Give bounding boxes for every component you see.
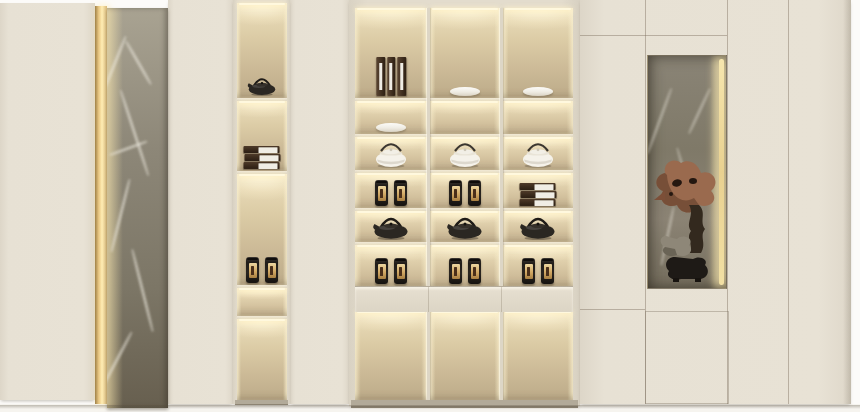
floor-cast-shadow <box>0 405 860 409</box>
bowl-body <box>523 87 553 96</box>
row-3-col-3 <box>503 137 573 170</box>
left-door-panel <box>0 3 95 400</box>
spine-label <box>400 63 403 90</box>
canister-gold-label <box>397 186 405 201</box>
marble-vein <box>119 90 149 176</box>
tall-display-column <box>233 0 290 404</box>
row-7-col-1 <box>355 311 427 400</box>
cabinet-edge-shadow <box>843 0 851 404</box>
gift-box <box>245 154 281 161</box>
bowl-white <box>376 123 406 132</box>
row-1-col-1 <box>355 8 427 98</box>
tea-canister <box>468 180 481 206</box>
canister-gold-label <box>471 264 479 279</box>
niche-light-strip <box>357 173 425 175</box>
row-1-col-2 <box>430 8 500 98</box>
row-5-col-1 <box>355 211 427 242</box>
column-divider <box>500 311 503 400</box>
canister-pair <box>449 258 481 284</box>
niche-light-strip <box>505 173 571 175</box>
box-label <box>535 184 554 190</box>
column-shelf-3 <box>237 174 287 285</box>
niche-light-strip <box>239 319 285 321</box>
bowl-body <box>376 123 406 132</box>
niche-light-strip <box>357 8 425 10</box>
gift-box-stack <box>244 145 281 169</box>
row-6-col-1 <box>355 245 427 286</box>
niche-light-strip <box>505 8 571 10</box>
canister-motif <box>399 267 402 277</box>
canister-motif <box>251 266 254 276</box>
canister-pair <box>449 180 481 206</box>
canister-gold-label <box>452 264 460 279</box>
niche-light-strip <box>432 101 498 103</box>
gift-box <box>520 199 556 206</box>
niche-light-strip <box>239 174 285 176</box>
marble-pillar <box>107 8 168 408</box>
upright-tea-box <box>376 57 385 96</box>
mid-spacer-panel <box>290 0 349 404</box>
row-3-col-1 <box>355 137 427 170</box>
box-label <box>259 163 278 169</box>
canister-motif <box>380 267 383 277</box>
canister-gold-label <box>452 186 460 201</box>
canister-gold-label <box>397 264 405 279</box>
row-2-col-2 <box>430 101 500 134</box>
row-6-col-2 <box>430 245 500 286</box>
gift-box <box>244 162 280 169</box>
gift-box-stack <box>520 182 557 206</box>
canister-motif <box>527 267 530 277</box>
drawer-divider-line <box>428 287 429 312</box>
niche-light-strip <box>239 288 285 290</box>
display-unit <box>349 0 580 406</box>
niche-light-strip <box>432 173 498 175</box>
niche-light-strip <box>239 3 285 5</box>
column-divider <box>427 8 430 286</box>
niche-light-strip <box>357 245 425 247</box>
tea-canister <box>375 180 388 206</box>
teapot-white <box>373 136 409 168</box>
marble-vein <box>131 249 154 332</box>
canister-motif <box>454 267 457 277</box>
niche-light-strip <box>505 101 571 103</box>
box-label <box>260 155 279 161</box>
accent-light-strip <box>95 6 107 404</box>
tea-canister <box>394 258 407 284</box>
row-5-col-2 <box>430 211 500 242</box>
tea-canister <box>394 180 407 206</box>
drawer-divider-line <box>501 287 502 312</box>
row-7-col-3 <box>503 311 573 400</box>
canister-motif <box>270 266 273 276</box>
teapot-dark-small <box>244 72 279 96</box>
row-2-col-3 <box>503 101 573 134</box>
teapot-dark <box>369 210 413 240</box>
row-3-col-2 <box>430 137 500 170</box>
canister-motif <box>473 267 476 277</box>
box-label <box>259 147 278 153</box>
canister-gold-label <box>268 263 276 278</box>
canister-gold-label <box>378 186 386 201</box>
upright-tea-box <box>397 57 406 96</box>
teapot-dark <box>443 210 487 240</box>
canister-gold-label <box>525 264 533 279</box>
box-label <box>535 200 554 206</box>
row-7-col-2 <box>430 311 500 400</box>
column-divider <box>500 8 503 286</box>
gift-box <box>521 191 557 198</box>
gift-box <box>244 146 280 153</box>
teapot-white <box>447 136 483 168</box>
column-shelf-5 <box>237 319 287 400</box>
row-2-col-1 <box>355 101 427 134</box>
tea-canister <box>265 257 278 283</box>
row-5-col-3 <box>503 211 573 242</box>
column-shelf-4 <box>237 288 287 316</box>
marble-vein <box>125 41 152 86</box>
spine-label <box>389 63 392 90</box>
column-divider <box>427 311 430 400</box>
tea-canister <box>468 258 481 284</box>
tea-canister <box>449 180 462 206</box>
marble-sculpture-niche <box>647 55 727 289</box>
door-seam-vertical <box>788 0 789 404</box>
marble-vein <box>647 88 672 155</box>
canister-gold-label <box>471 186 479 201</box>
teapot-white <box>520 136 556 168</box>
row-1-col-3 <box>503 8 573 98</box>
niche-light-strip <box>239 101 285 103</box>
row-4-col-3 <box>503 173 573 208</box>
tea-canister <box>246 257 259 283</box>
column-shelf-2 <box>237 101 287 171</box>
drawer-band <box>355 286 573 312</box>
drawer-front-outline <box>645 311 729 404</box>
canister-motif <box>454 189 457 199</box>
bowl-white <box>523 87 553 96</box>
canister-pair <box>246 257 278 283</box>
tea-canister <box>375 258 388 284</box>
marble-vein <box>107 36 127 93</box>
tea-canister <box>522 258 535 284</box>
canister-pair <box>375 180 407 206</box>
column-shelf-1 <box>237 3 287 98</box>
canister-gold-label <box>249 263 257 278</box>
book-set-vertical <box>376 57 406 96</box>
box-stack <box>520 182 557 206</box>
canister-gold-label <box>378 264 386 279</box>
gift-box <box>520 183 556 190</box>
upright-tea-box <box>387 57 396 96</box>
canister-motif <box>399 189 402 199</box>
tea-canister <box>449 258 462 284</box>
canister-motif <box>380 189 383 199</box>
box-label <box>536 192 555 198</box>
door-seam-horizontal <box>580 35 727 36</box>
canister-pair <box>375 258 407 284</box>
marble-vein <box>107 331 133 390</box>
left-return-panel <box>168 0 233 404</box>
canister-motif <box>546 267 549 277</box>
niche-light-strip <box>505 245 571 247</box>
box-stack <box>244 145 281 169</box>
canister-motif <box>473 189 476 199</box>
row-4-col-1 <box>355 173 427 208</box>
niche-light-strip <box>432 8 498 10</box>
canister-gold-label <box>544 264 552 279</box>
niche-light-strip <box>432 245 498 247</box>
door-seam-horizontal <box>580 309 645 310</box>
niche-light-strip <box>357 101 425 103</box>
marble-vein <box>688 88 711 134</box>
bowl-body <box>450 87 480 96</box>
row-6-col-3 <box>503 245 573 286</box>
teapot-dark <box>516 210 560 240</box>
bowl-white <box>450 87 480 96</box>
row-4-col-2 <box>430 173 500 208</box>
spine-label <box>379 63 382 90</box>
cabinet-scene <box>0 0 860 412</box>
tea-canister <box>541 258 554 284</box>
canister-pair <box>522 258 554 284</box>
marble-vein <box>110 179 131 252</box>
driftwood-root-sculpture <box>651 153 721 283</box>
